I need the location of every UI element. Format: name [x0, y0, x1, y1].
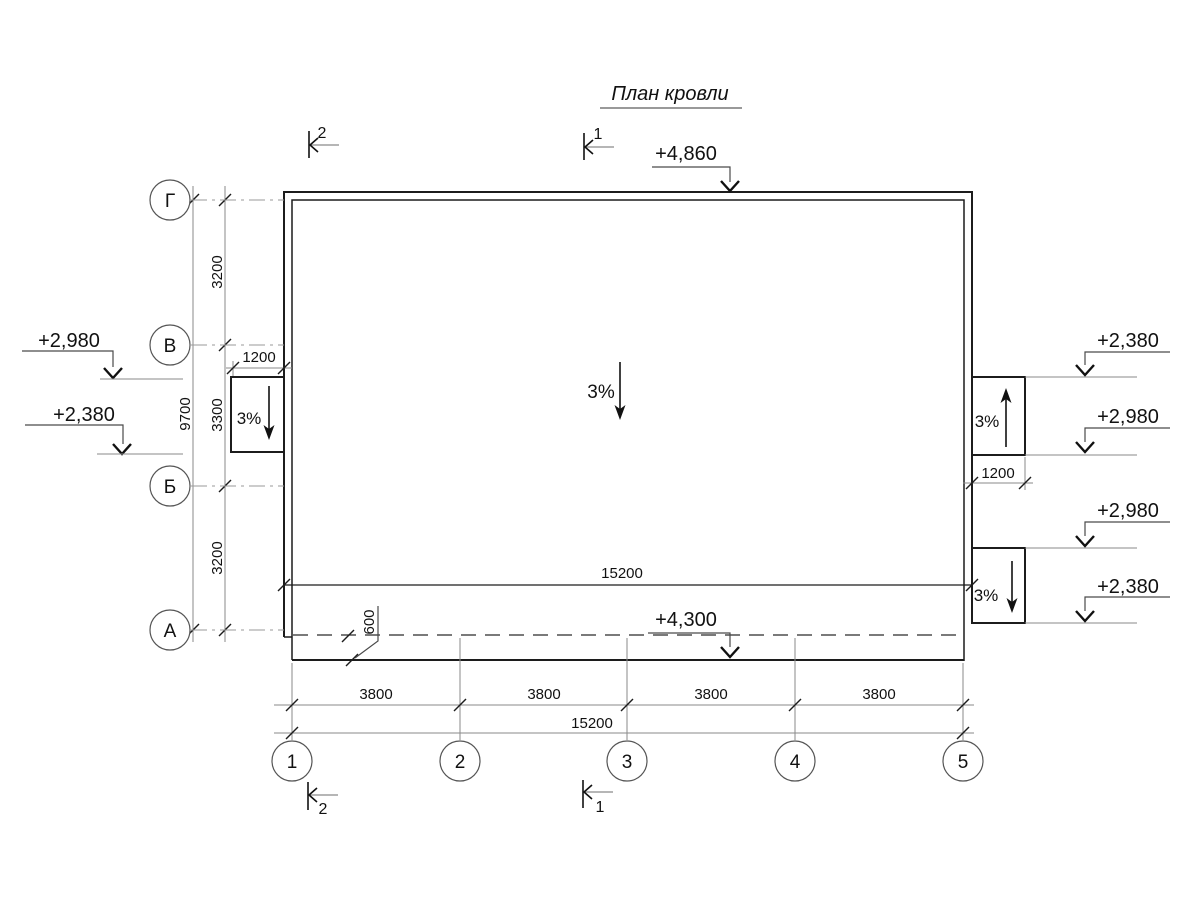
bottom-dim-segment-2: 3800	[527, 686, 560, 703]
main-slope-label: 3%	[587, 382, 615, 403]
axis-label-a: А	[164, 621, 177, 642]
section-label: 1	[596, 799, 605, 816]
bottom-dimension-chain: 3800 3800 3800 3800 15200	[274, 638, 974, 740]
elevation-leader	[1085, 428, 1170, 442]
bottom-dim-segment-4: 3800	[862, 686, 895, 703]
left-canopy-dimension: 1200	[226, 349, 292, 376]
elevation-ridge-label: +4,860	[655, 143, 717, 165]
down-arrow-icon	[721, 181, 739, 191]
section-mark-top-left: 2	[309, 125, 339, 158]
elevation-right-3-label: +2,980	[1097, 500, 1159, 522]
elevation-right-3: +2,980	[1025, 500, 1170, 548]
elevation-right-4: +2,380	[1025, 576, 1170, 623]
axis-label-4: 4	[790, 752, 801, 773]
left-dimension-chain: 3200 3300 3200 9700	[177, 186, 231, 642]
section-label: 2	[318, 125, 327, 142]
down-arrow-icon	[1076, 365, 1094, 375]
interior-width-label: 15200	[601, 565, 643, 582]
elevation-leader	[1085, 522, 1170, 536]
elevation-leader	[652, 167, 730, 182]
left-dim-segment-2: 3300	[209, 398, 226, 431]
canopies	[231, 377, 1025, 623]
left-canopy-dim-label: 1200	[242, 349, 275, 366]
col-axes: 1 2 3 4 5	[272, 741, 983, 781]
elevation-right-2: +2,980	[1025, 406, 1170, 455]
section-mark-bottom-center: 1	[583, 780, 613, 816]
elevation-right-4-label: +2,380	[1097, 576, 1159, 598]
axis-label-b: Б	[164, 477, 176, 498]
axis-label-g: Г	[165, 191, 175, 212]
elevation-left-bottom-label: +2,380	[53, 404, 115, 426]
left-dim-total: 9700	[177, 397, 194, 430]
axis-label-v: В	[164, 336, 177, 357]
dim-tick	[342, 630, 354, 642]
down-arrow-icon	[1076, 536, 1094, 546]
elevation-right-1-label: +2,380	[1097, 330, 1159, 352]
roof-plan-drawing: План кровли 15200 3% 3% 3%	[0, 0, 1200, 900]
down-arrow-icon	[1076, 442, 1094, 452]
roof-plan-svg: План кровли 15200 3% 3% 3%	[0, 0, 1200, 900]
elevation-left-bottom: +2,380	[25, 404, 183, 454]
right-canopy-dim-label: 1200	[981, 465, 1014, 482]
left-dim-segment-1: 3200	[209, 255, 226, 288]
down-arrow-icon	[1076, 611, 1094, 621]
elevation-left-top-label: +2,980	[38, 330, 100, 352]
elevation-right-2-label: +2,980	[1097, 406, 1159, 428]
section-mark-top-center: 1	[584, 126, 614, 160]
left-canopy-slope-label: 3%	[237, 409, 262, 428]
section-label: 2	[319, 801, 328, 818]
elevation-leader	[1085, 597, 1170, 611]
axis-label-2: 2	[455, 752, 466, 773]
building-outline	[284, 192, 972, 661]
elevation-eave: +4,300	[648, 609, 739, 657]
elevation-leader	[25, 425, 123, 444]
elevation-right-1: +2,380	[1025, 330, 1170, 377]
parapet-inner-line	[292, 200, 964, 661]
bottom-dim-segment-3: 3800	[694, 686, 727, 703]
right-canopy-dimension: 1200	[963, 457, 1033, 490]
overhang-dimension: 600	[342, 606, 378, 666]
axis-label-3: 3	[622, 752, 633, 773]
elevation-ridge: +4,860	[652, 143, 739, 191]
down-arrow-icon	[113, 444, 131, 454]
drawing-title: План кровли	[600, 83, 742, 108]
elevation-leader	[22, 351, 113, 367]
interior-width-dimension: 15200	[278, 565, 978, 591]
elevation-eave-label: +4,300	[655, 609, 717, 631]
overhang-dim-label: 600	[361, 609, 378, 634]
axis-label-5: 5	[958, 752, 969, 773]
axis-label-1: 1	[287, 752, 298, 773]
down-arrow-icon	[721, 647, 739, 657]
bottom-dim-segment-1: 3800	[359, 686, 392, 703]
right-lower-canopy-slope-label: 3%	[974, 586, 999, 605]
elevation-leader	[1085, 352, 1170, 365]
page-title: План кровли	[611, 83, 728, 105]
left-dim-segment-3: 3200	[209, 541, 226, 574]
bottom-dim-total: 15200	[571, 715, 613, 732]
right-upper-canopy-slope-label: 3%	[975, 412, 1000, 431]
section-label: 1	[594, 126, 603, 143]
down-arrow-icon	[104, 368, 122, 378]
section-mark-bottom-left: 2	[308, 782, 338, 818]
